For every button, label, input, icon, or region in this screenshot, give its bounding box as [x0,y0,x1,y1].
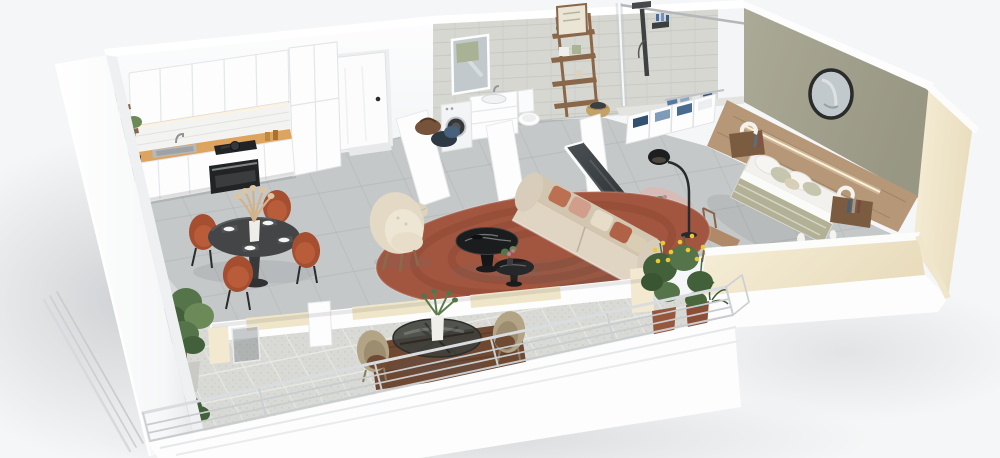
apartment-3d-scene [0,0,1000,458]
kitchen-tall-unit [289,42,341,176]
door-handle [376,97,381,102]
jar [273,130,278,140]
floorplan-render [0,0,1000,458]
door-post [308,301,332,347]
towel-roll [572,45,581,54]
towel [456,41,479,63]
jar [265,132,270,141]
round-mirror [810,70,852,118]
sink-bowl [482,95,506,104]
facade-pillar [208,326,230,364]
bath-mirror [452,35,489,94]
framed-print [557,4,587,36]
glass-door-pane [232,326,260,363]
deco-bowl [471,235,483,240]
towel-roll [559,47,569,56]
